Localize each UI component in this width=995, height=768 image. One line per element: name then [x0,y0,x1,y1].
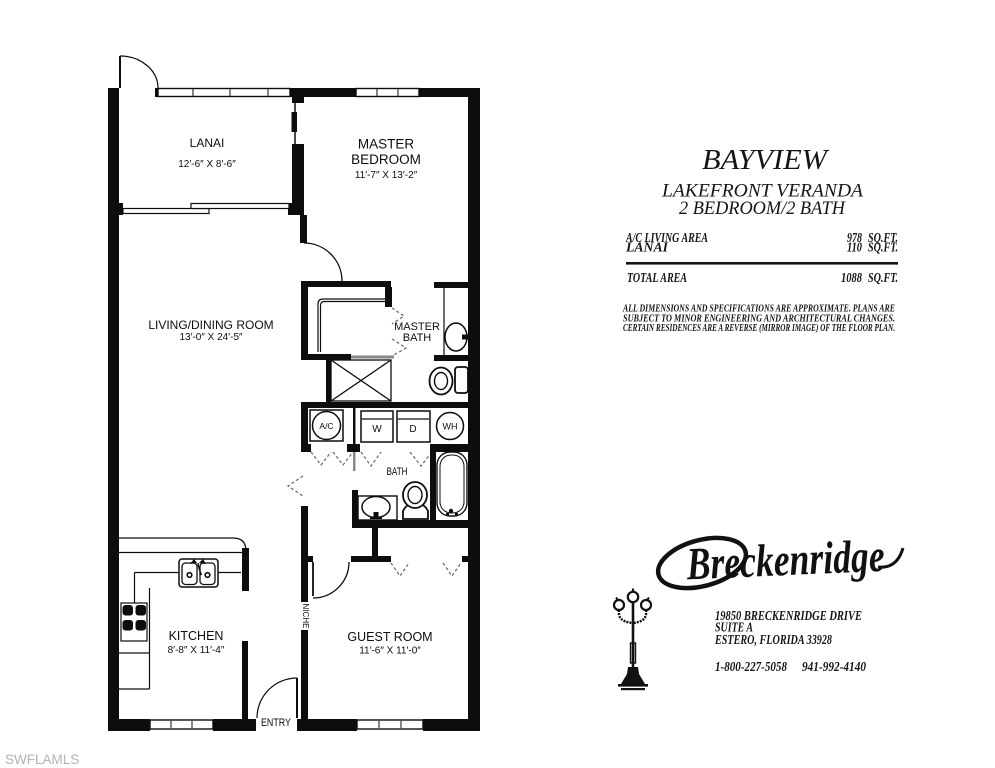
svg-text:Breckenridge: Breckenridge [685,530,886,590]
